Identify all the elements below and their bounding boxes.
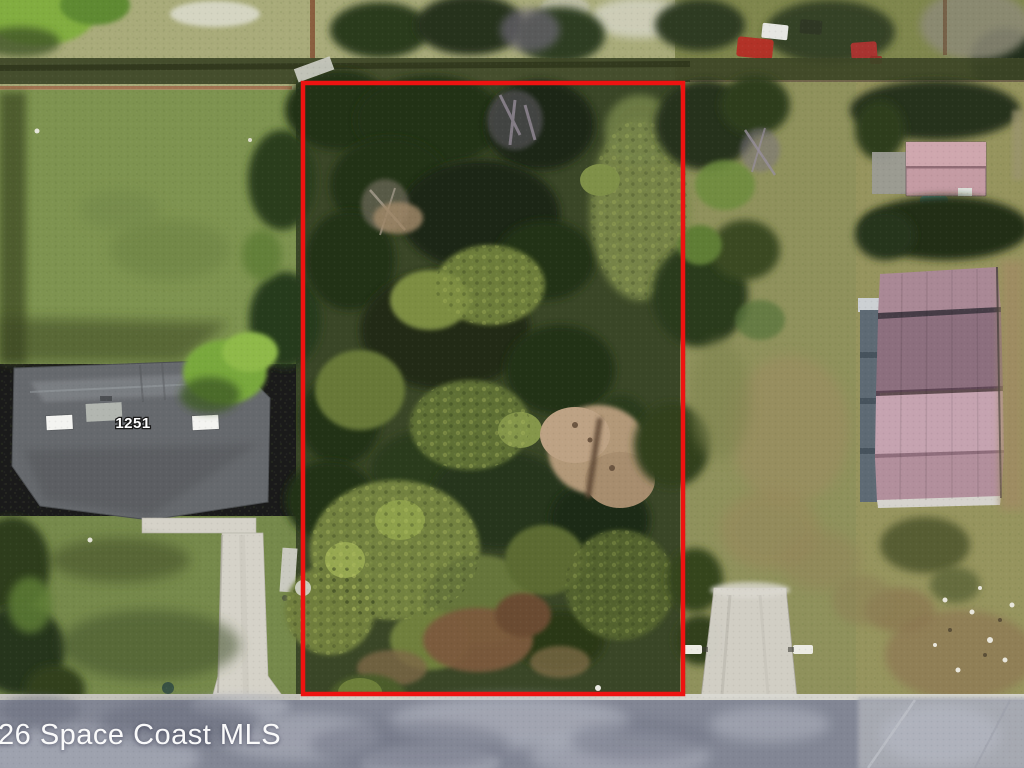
photo-grain: [0, 0, 1024, 768]
aerial-photo-canvas: 1251: [0, 0, 1024, 768]
aerial-photo: 1251: [0, 0, 1024, 768]
